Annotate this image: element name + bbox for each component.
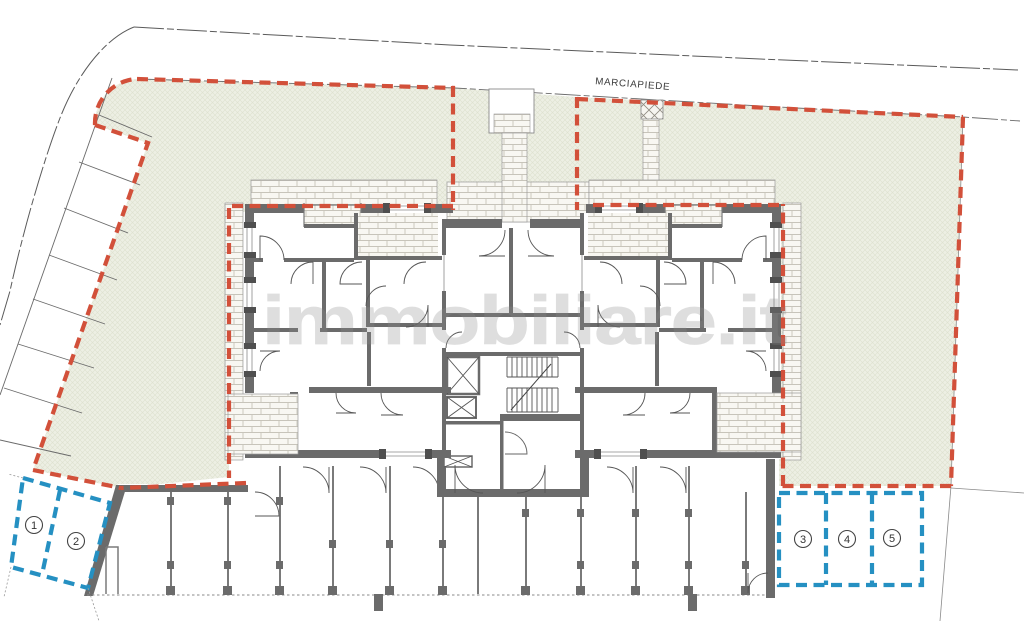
svg-text:5: 5 <box>889 533 895 545</box>
svg-text:2: 2 <box>73 536 79 548</box>
svg-text:3: 3 <box>800 534 806 546</box>
svg-text:1: 1 <box>31 520 37 532</box>
svg-text:4: 4 <box>844 534 850 546</box>
svg-text:immobiliare.it: immobiliare.it <box>262 282 787 359</box>
